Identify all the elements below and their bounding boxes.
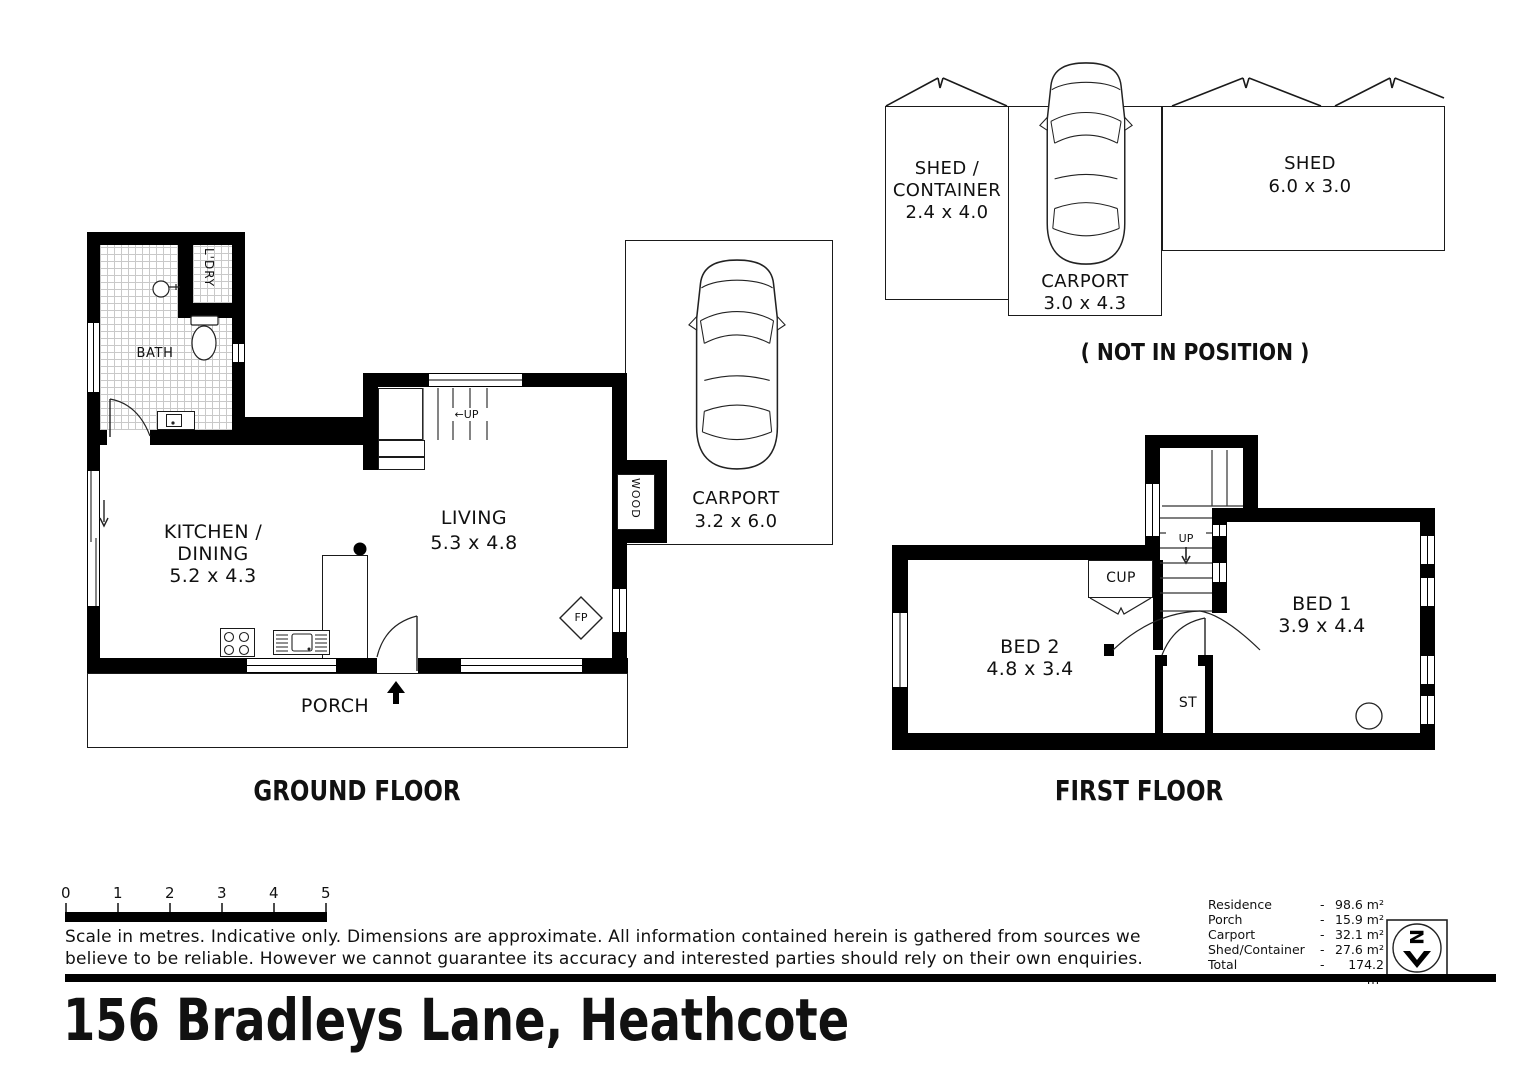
bath-heater-inner	[166, 414, 182, 427]
area-label: Shed/Container	[1208, 942, 1320, 957]
scale-tick-label: 4	[264, 884, 284, 902]
area-sep: -	[1320, 927, 1330, 942]
disclaimer-line2: believe to be reliable. However we canno…	[65, 949, 1143, 969]
wall	[1212, 508, 1435, 522]
shed-roof-peak	[1335, 78, 1444, 106]
scale-tick-label: 5	[316, 884, 336, 902]
wall	[100, 430, 107, 445]
room-label-kitchen: KITCHEN /	[138, 521, 288, 543]
wall	[87, 245, 100, 322]
area-value: 98.6 m²	[1330, 897, 1384, 912]
room-dims-bed2: 4.8 x 3.4	[955, 658, 1105, 680]
storage-label: ST	[1158, 695, 1218, 711]
door-swing-arc	[1162, 618, 1205, 655]
scale-tick-label: 1	[108, 884, 128, 902]
first-floor-title: FIRST FLOOR	[1016, 774, 1262, 807]
wall	[892, 733, 1435, 750]
wall	[612, 387, 627, 460]
separator-rule	[65, 974, 1496, 982]
window	[612, 588, 627, 633]
window	[246, 658, 337, 673]
support-post	[354, 543, 367, 556]
room-dims-living: 5.3 x 4.8	[399, 532, 549, 554]
stair-direction-arrow	[1182, 547, 1190, 563]
area-label: Total	[1208, 957, 1320, 987]
room-dims-kitchen: 5.2 x 4.3	[138, 565, 288, 587]
stove-cooktop	[220, 628, 255, 657]
room-dims-carport: 3.2 x 6.0	[661, 511, 811, 532]
door-jamb	[1104, 644, 1114, 656]
not-in-position-note: ( NOT IN POSITION )	[1063, 340, 1327, 366]
wall	[1420, 522, 1435, 535]
outbuilding-carport-label: CARPORT	[1010, 271, 1160, 292]
area-row: Carport - 32.1 m²	[1208, 927, 1384, 942]
room-label-carport: CARPORT	[661, 488, 811, 509]
wall	[378, 373, 428, 387]
floorplan-page: N BATH L'DRY KITCHEN / DINING 5.2 x 4.3 …	[0, 0, 1513, 1080]
scale-ticks	[66, 903, 326, 912]
area-label: Residence	[1208, 897, 1320, 912]
area-sep: -	[1320, 897, 1330, 912]
door-jamb	[1198, 655, 1213, 666]
window	[1420, 655, 1435, 685]
area-row: Total - 174.2 m²	[1208, 957, 1384, 987]
room-label-porch: PORCH	[260, 695, 410, 717]
wall	[612, 633, 627, 658]
room-label-bed2: BED 2	[955, 636, 1105, 658]
window	[1212, 562, 1227, 583]
wall	[150, 430, 245, 445]
window	[892, 612, 908, 688]
scale-tick-label: 2	[160, 884, 180, 902]
wall	[87, 232, 245, 245]
disclaimer-line1: Scale in metres. Indicative only. Dimens…	[65, 927, 1141, 947]
wall	[892, 688, 908, 733]
wall	[583, 658, 628, 673]
scale-tick-label: 3	[212, 884, 232, 902]
area-value: 27.6 m²	[1330, 942, 1384, 957]
wall	[363, 373, 378, 470]
wall	[87, 393, 100, 470]
area-label: Carport	[1208, 927, 1320, 942]
door-jamb	[1155, 655, 1167, 666]
round-fixture	[1356, 703, 1382, 729]
room-dims-bed1: 3.9 x 4.4	[1247, 615, 1397, 637]
wall	[232, 363, 245, 430]
stairs-up-label: ←UP	[444, 408, 489, 421]
stairs-up-label: UP	[1166, 532, 1206, 545]
shed-roof-peak	[1172, 78, 1321, 106]
wall	[1153, 560, 1163, 650]
wall	[178, 245, 193, 303]
room-label-living: LIVING	[399, 507, 549, 529]
wall	[892, 560, 908, 612]
shed-dims: 6.0 x 3.0	[1235, 176, 1385, 197]
area-value: 174.2 m²	[1330, 957, 1384, 987]
sliding-door	[87, 470, 100, 607]
wall	[1145, 435, 1258, 448]
area-sep: -	[1320, 957, 1330, 987]
window	[1145, 483, 1160, 537]
area-value: 15.9 m²	[1330, 912, 1384, 927]
wall	[178, 303, 245, 318]
ground-floor-title: GROUND FLOOR	[226, 774, 488, 807]
window	[87, 322, 100, 393]
property-address-title: 156 Bradleys Lane, Heathcote	[63, 986, 849, 1054]
area-label: Porch	[1208, 912, 1320, 927]
wall	[523, 373, 627, 387]
bifold-door	[1090, 598, 1151, 614]
fireplace-label: FP	[566, 611, 596, 624]
kitchen-sink-counter	[273, 630, 330, 655]
shed-roof-peak	[886, 78, 1007, 106]
shed-container-label: CONTAINER	[872, 180, 1022, 201]
wall	[1420, 685, 1435, 695]
wall	[245, 417, 378, 445]
window	[1420, 695, 1435, 725]
outbuilding-carport-dims: 3.0 x 4.3	[1010, 293, 1160, 314]
cupboard-label: CUP	[1089, 570, 1153, 586]
area-row: Residence - 98.6 m²	[1208, 897, 1384, 912]
window	[1420, 577, 1435, 607]
sliding-door-arrow	[100, 500, 108, 526]
wall	[1420, 607, 1435, 655]
scale-tick-label: 0	[56, 884, 76, 902]
area-sep: -	[1320, 912, 1330, 927]
compass-arrow	[1403, 951, 1431, 968]
area-row: Porch - 15.9 m²	[1208, 912, 1384, 927]
area-row: Shed/Container - 27.6 m²	[1208, 942, 1384, 957]
window	[460, 658, 583, 673]
stair-step	[378, 457, 425, 470]
window	[1420, 535, 1435, 565]
wood-heater-label: WOOD	[629, 478, 642, 528]
wall	[892, 545, 1145, 560]
room-label-dining: DINING	[138, 543, 288, 565]
area-value: 32.1 m²	[1330, 927, 1384, 942]
room-label-laundry: L'DRY	[202, 248, 216, 302]
window	[232, 343, 245, 363]
wall	[232, 245, 245, 343]
shed-label: SHED	[1235, 153, 1385, 174]
area-sep: -	[1320, 942, 1330, 957]
wall	[337, 658, 377, 673]
door-swing-arc	[377, 616, 417, 657]
wall	[87, 658, 246, 673]
room-label-bed1: BED 1	[1247, 593, 1397, 615]
room-label-bath: BATH	[105, 346, 205, 361]
compass-icon: N	[1387, 920, 1447, 976]
wall	[1420, 565, 1435, 577]
shed-container-dims: 2.4 x 4.0	[872, 202, 1022, 223]
wall	[418, 658, 460, 673]
wall	[1145, 448, 1160, 483]
compass-north-letter: N	[1405, 929, 1427, 945]
wall	[612, 543, 627, 588]
stair-treads	[1162, 450, 1243, 506]
shed-container-label: SHED /	[872, 158, 1022, 179]
window	[1212, 524, 1227, 537]
window	[428, 373, 523, 387]
wall	[1420, 725, 1435, 733]
stair-landing	[378, 388, 423, 440]
wall	[1145, 537, 1160, 560]
scale-bar	[65, 912, 327, 922]
stair-step	[378, 440, 425, 457]
